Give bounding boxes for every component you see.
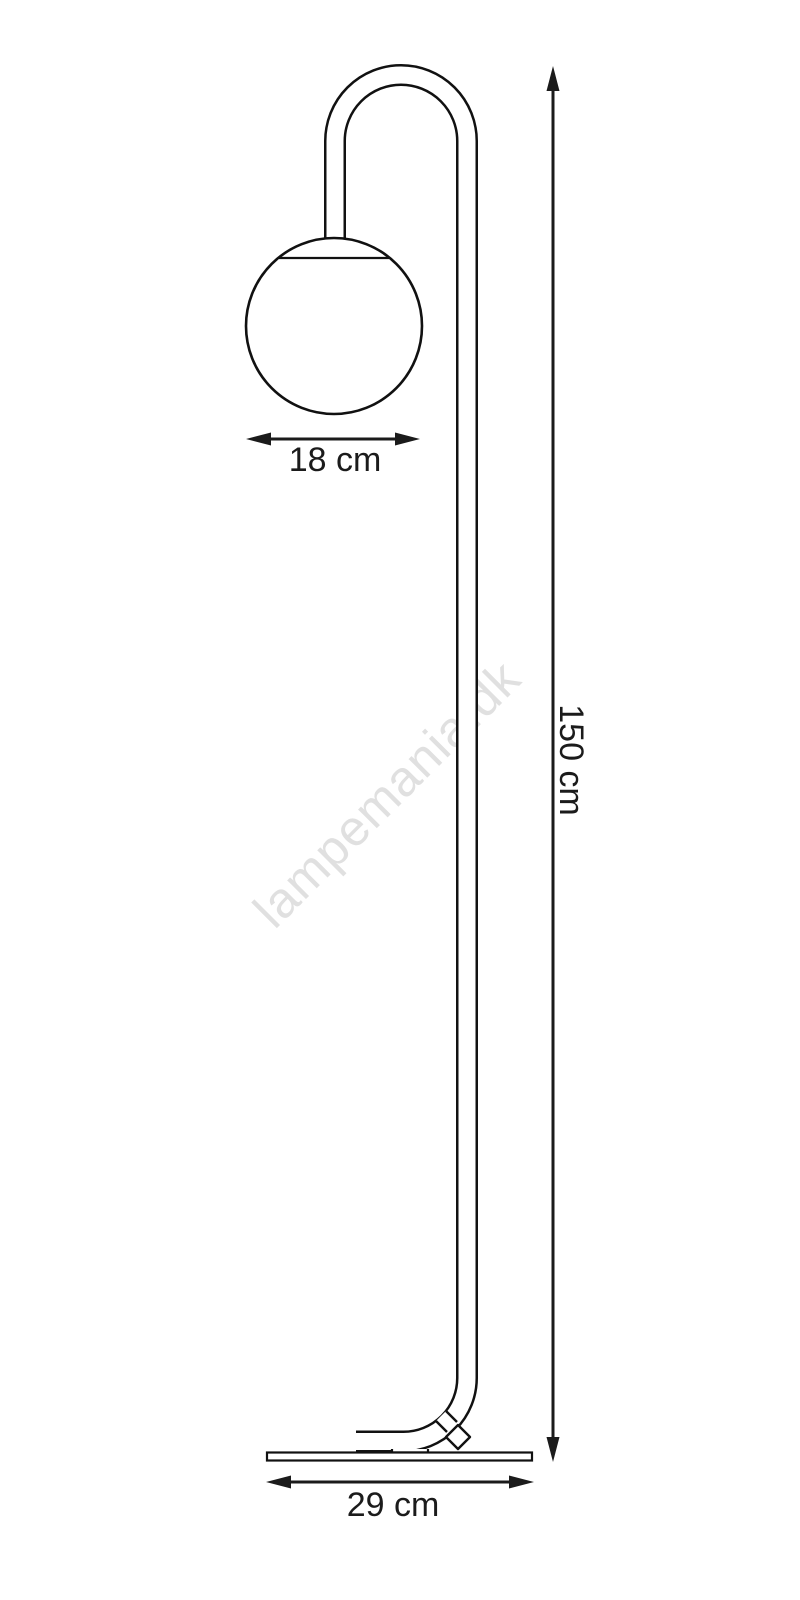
lamp-dimension-diagram: lampemania.dk 18 cm 150 cm bbox=[0, 0, 800, 1600]
base-width-dimension: 29 cm bbox=[266, 1476, 534, 1525]
base-width-label: 29 cm bbox=[347, 1486, 440, 1524]
shade-width-label: 18 cm bbox=[289, 441, 382, 479]
base-width-arrowhead-left bbox=[266, 1476, 291, 1489]
base-width-arrowhead-right bbox=[509, 1476, 534, 1489]
watermark-text: lampemania.dk bbox=[243, 650, 532, 939]
height-arrowhead-bottom bbox=[547, 1437, 560, 1462]
height-label: 150 cm bbox=[552, 704, 590, 816]
shade-width-arrowhead-right bbox=[395, 433, 420, 446]
base-plate bbox=[267, 1453, 532, 1461]
shade-width-dimension: 18 cm bbox=[246, 433, 420, 480]
diagram-canvas: lampemania.dk 18 cm 150 cm bbox=[0, 0, 800, 1600]
globe-shade bbox=[246, 238, 422, 414]
height-dimension: 150 cm bbox=[547, 66, 591, 1462]
shade-width-arrowhead-left bbox=[246, 433, 271, 446]
height-arrowhead-top bbox=[547, 66, 560, 91]
